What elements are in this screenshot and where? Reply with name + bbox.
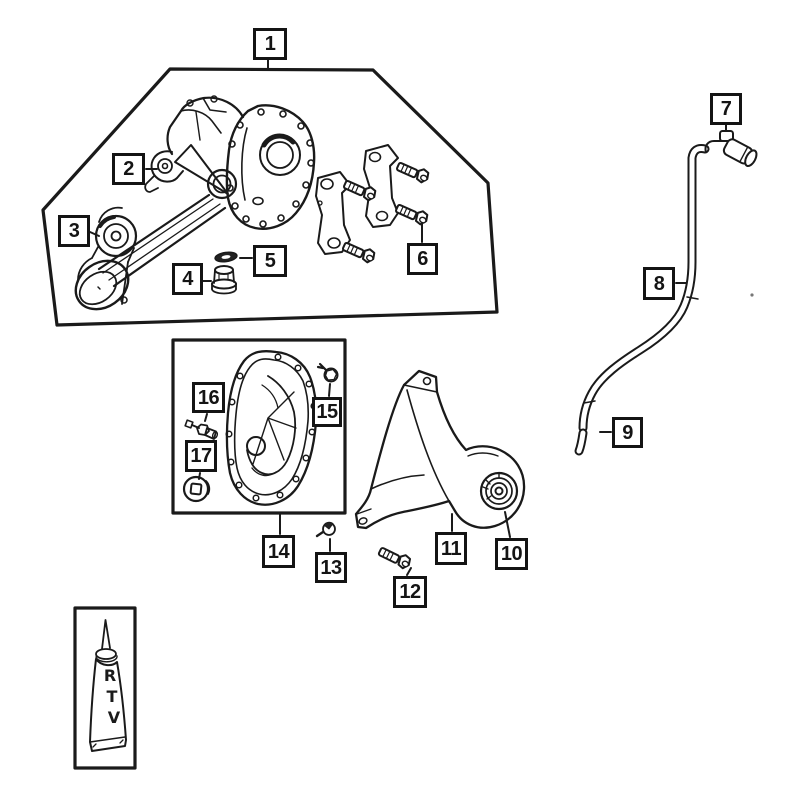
callout-13-label: 13: [320, 558, 341, 578]
callout-16[interactable]: 16: [192, 382, 225, 413]
square-plug-drawing: [184, 477, 209, 501]
callout-4[interactable]: 4: [172, 263, 203, 295]
parts-diagram-canvas: 1 2 3 4 5 6 7 8 9 10 11 12 13 14 15 16 1…: [0, 0, 800, 800]
assembly-enclosure-outline: [43, 69, 497, 325]
bushing-drawing: [481, 473, 517, 509]
callout-4-label: 4: [182, 269, 193, 289]
mount-bracket-drawing: [356, 371, 524, 528]
rtv-letter-r: R: [101, 666, 119, 685]
callout-17-label: 17: [190, 446, 211, 466]
callout-15-label: 15: [316, 402, 337, 422]
diagram-line-art: [0, 0, 800, 800]
fill-plug-drawing: [212, 266, 236, 294]
callout-11[interactable]: 11: [435, 532, 467, 565]
leader-lines: [90, 60, 726, 575]
callout-10-label: 10: [501, 544, 522, 564]
callout-12-label: 12: [399, 582, 420, 602]
washer-drawing: [214, 251, 237, 263]
rtv-letter-t: T: [103, 687, 121, 706]
callout-5-label: 5: [265, 251, 276, 271]
callout-17[interactable]: 17: [185, 440, 217, 472]
callout-5[interactable]: 5: [253, 245, 287, 277]
sensor-drawing: [185, 420, 218, 439]
small-screw-drawing: [317, 522, 335, 536]
mount-bolt-drawing: [378, 544, 412, 570]
rtv-letter-v: V: [105, 708, 123, 727]
callout-1-label: 1: [265, 34, 276, 54]
callout-13[interactable]: 13: [315, 552, 347, 583]
callout-8-label: 8: [654, 274, 665, 294]
rtv-tube-drawing: [90, 620, 126, 751]
callout-8[interactable]: 8: [643, 267, 675, 300]
callout-2-label: 2: [123, 159, 134, 179]
speck: [750, 293, 753, 296]
callout-6[interactable]: 6: [407, 243, 438, 275]
callout-11-label: 11: [441, 539, 461, 559]
callout-15[interactable]: 15: [312, 397, 342, 427]
callout-6-label: 6: [417, 249, 428, 269]
callout-9-label: 9: [622, 423, 633, 443]
callout-12[interactable]: 12: [393, 576, 427, 608]
callout-7-label: 7: [721, 99, 732, 119]
callout-14[interactable]: 14: [262, 535, 295, 568]
callout-3-label: 3: [69, 221, 80, 241]
callout-1[interactable]: 1: [253, 28, 287, 60]
callout-2[interactable]: 2: [112, 153, 145, 185]
callout-10[interactable]: 10: [495, 538, 528, 570]
callout-16-label: 16: [198, 388, 219, 408]
vent-fitting-drawing: [705, 131, 758, 168]
callout-3[interactable]: 3: [58, 215, 90, 247]
callout-9[interactable]: 9: [612, 417, 643, 448]
cover-bolt-drawing: [318, 364, 338, 382]
callout-7[interactable]: 7: [710, 93, 742, 125]
callout-14-label: 14: [268, 542, 289, 562]
